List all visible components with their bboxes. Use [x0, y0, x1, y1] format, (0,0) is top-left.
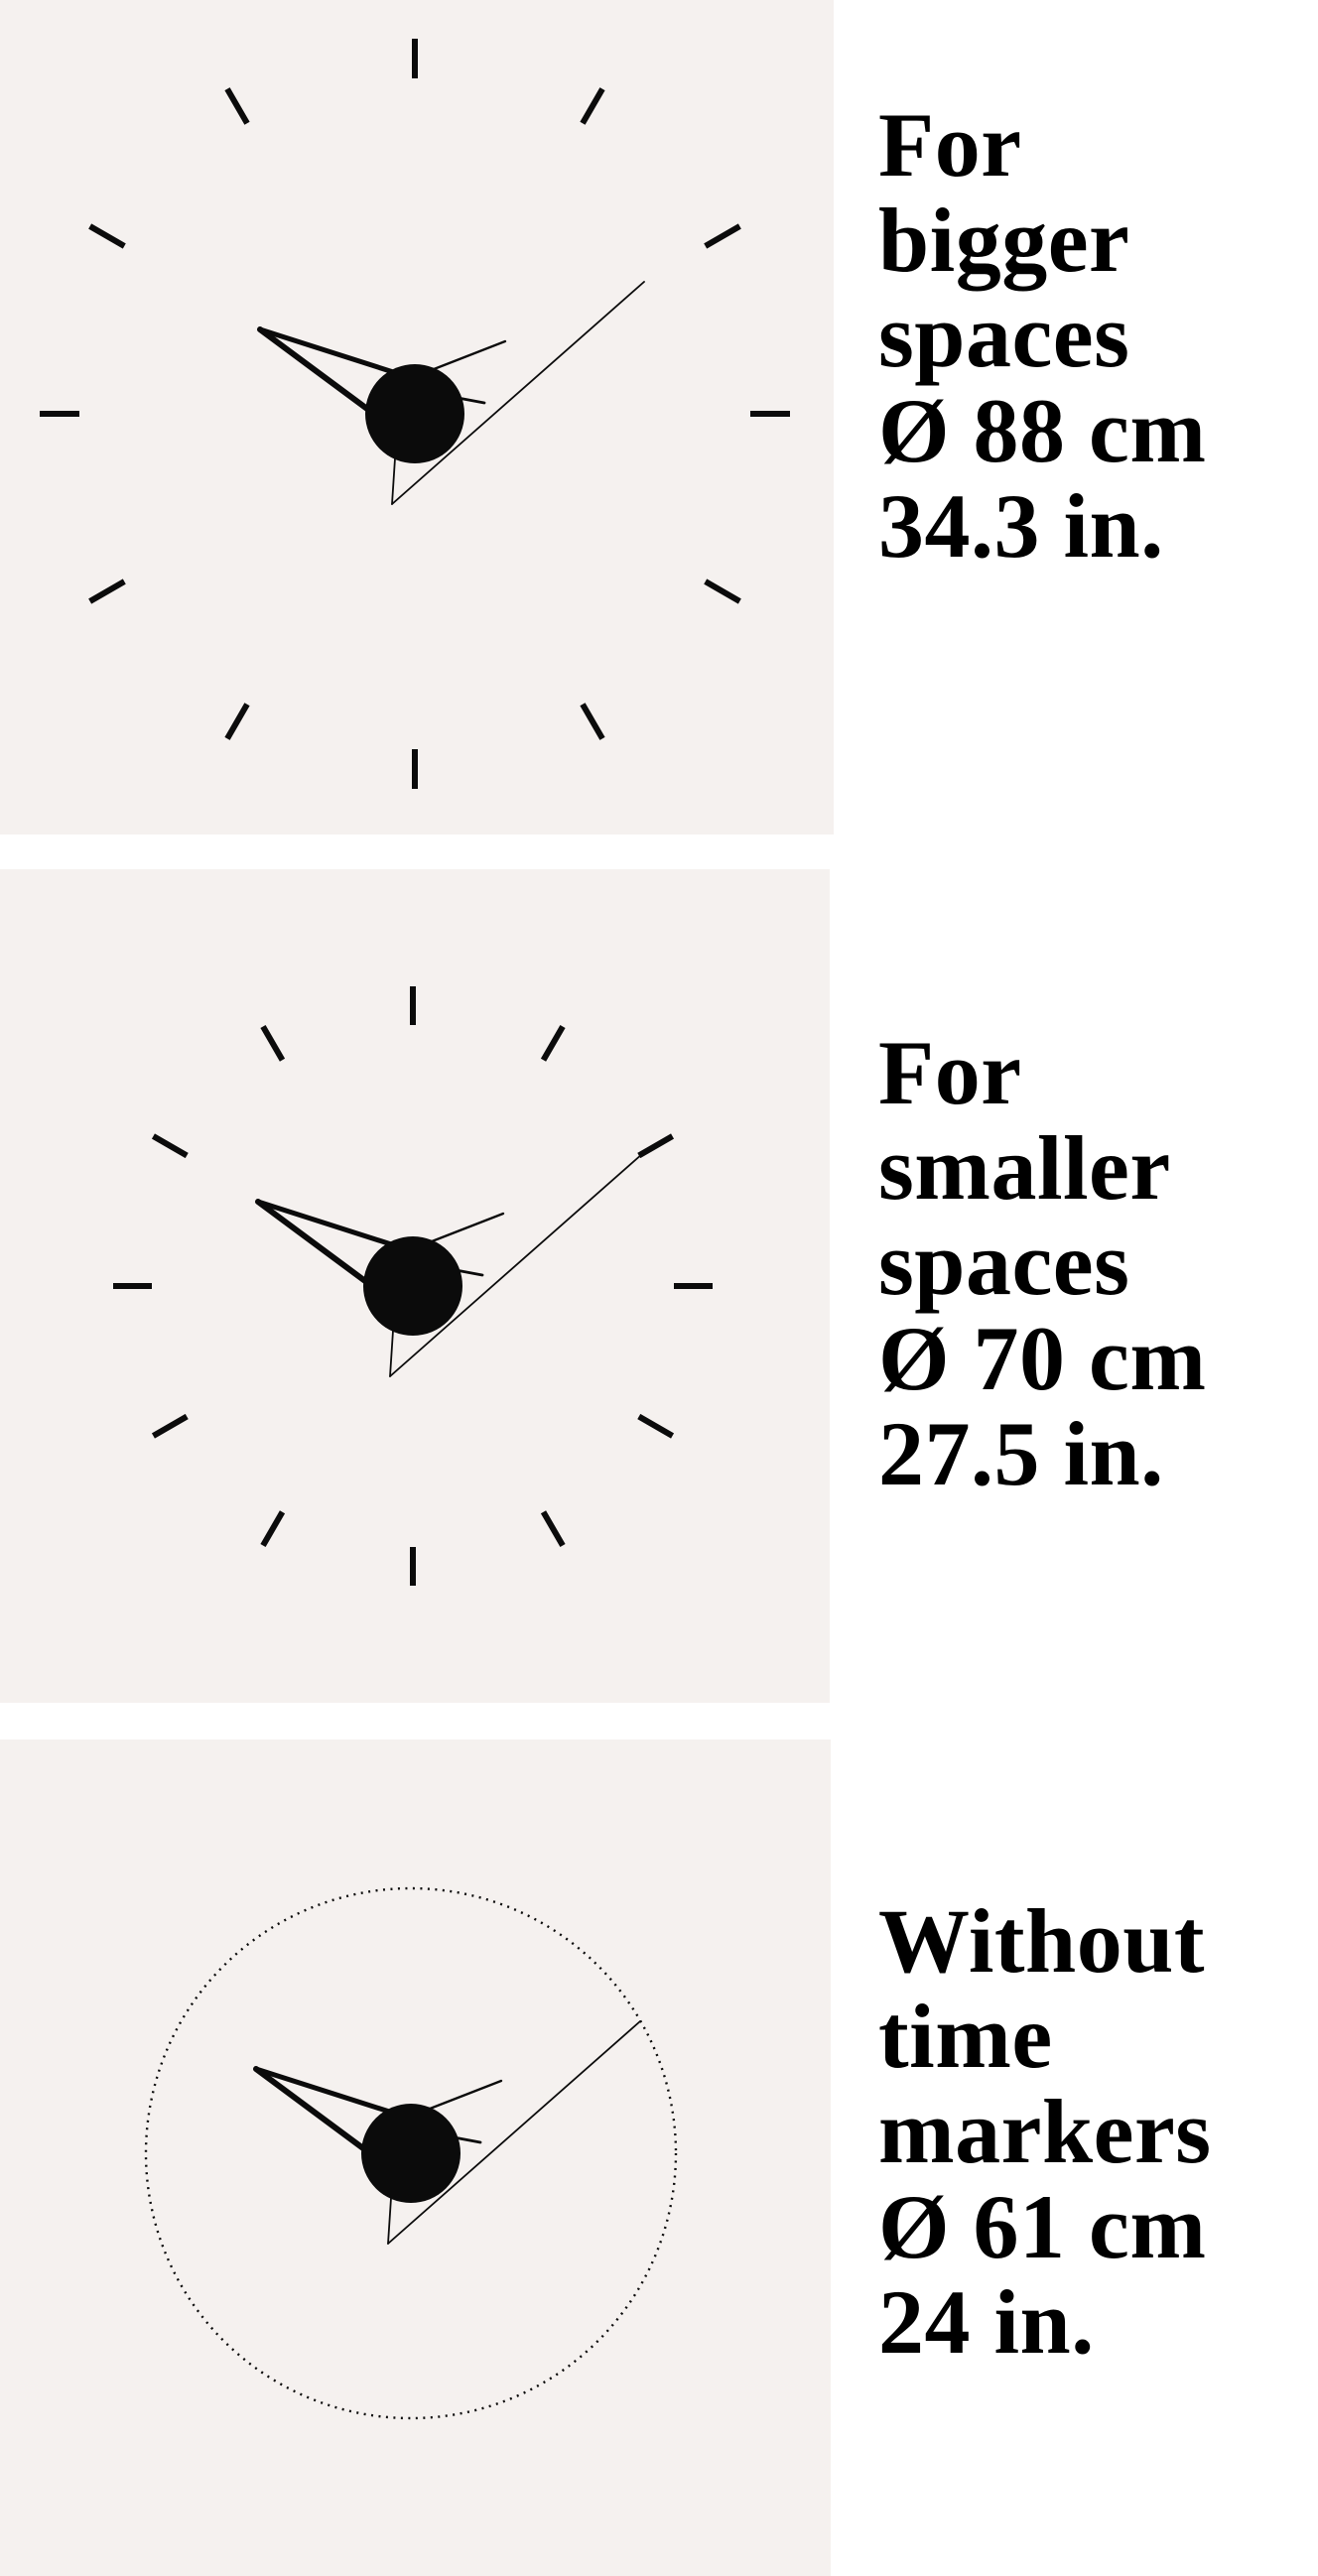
caption-line: bigger [878, 193, 1315, 288]
caption-without-markers: Without time markers Ø 61 cm 24 in. [878, 1893, 1315, 2370]
clock-panel-smaller [0, 869, 830, 1703]
caption-line: spaces [878, 1216, 1315, 1311]
wall-clock-88cm-graphic [0, 0, 834, 835]
caption-line: markers [878, 2084, 1315, 2179]
wall-clock-61cm-graphic [0, 1739, 831, 2576]
wall-clock-70cm-graphic [0, 869, 830, 1703]
clock-panel-no-markers [0, 1739, 831, 2576]
clock-panel-bigger [0, 0, 834, 835]
caption-line-diameter-in: 24 in. [878, 2274, 1315, 2370]
caption-bigger-spaces: For bigger spaces Ø 88 cm 34.3 in. [878, 97, 1315, 574]
caption-line: For [878, 1025, 1315, 1120]
caption-line: smaller [878, 1120, 1315, 1216]
caption-line-diameter-in: 27.5 in. [878, 1406, 1315, 1501]
caption-line: spaces [878, 288, 1315, 383]
caption-line-diameter-in: 34.3 in. [878, 478, 1315, 574]
caption-line: For [878, 97, 1315, 193]
caption-line-diameter-cm: Ø 70 cm [878, 1311, 1315, 1406]
caption-line: Without [878, 1893, 1315, 1989]
caption-smaller-spaces: For smaller spaces Ø 70 cm 27.5 in. [878, 1025, 1315, 1501]
caption-line: time [878, 1989, 1315, 2084]
caption-line-diameter-cm: Ø 61 cm [878, 2179, 1315, 2274]
caption-line-diameter-cm: Ø 88 cm [878, 383, 1315, 478]
